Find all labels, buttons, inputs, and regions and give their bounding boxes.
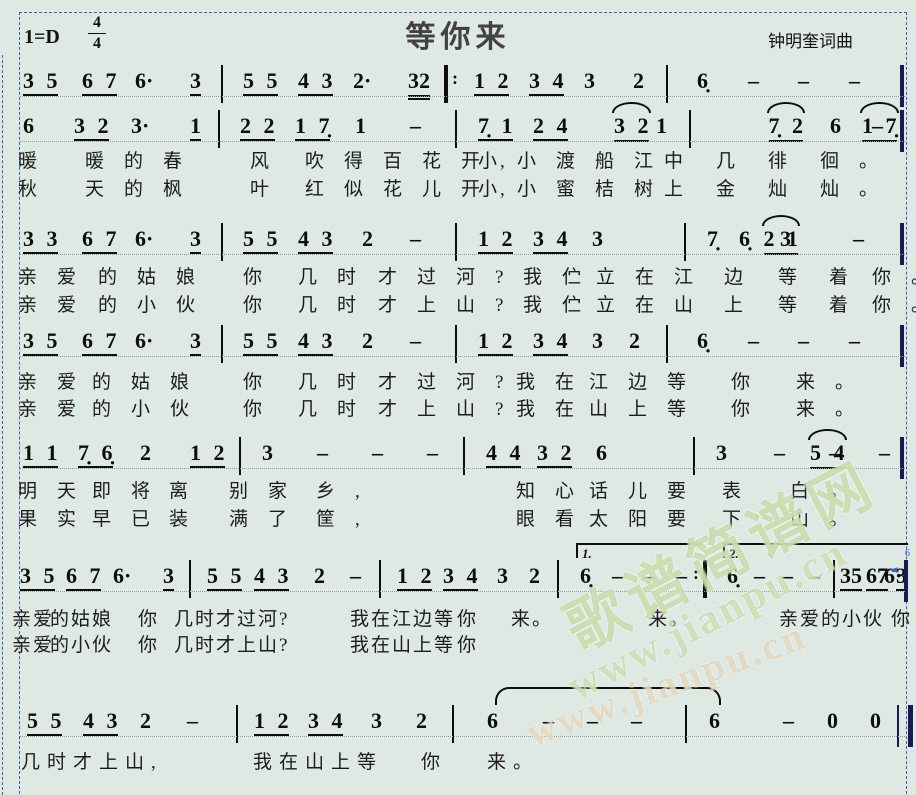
lyric-chunk: 上: [724, 296, 763, 315]
volta-bracket: 2.: [723, 543, 908, 558]
note-token: 6̣: [697, 330, 708, 352]
lyric-chunk: 江边等: [589, 373, 706, 392]
note-token: 1: [355, 115, 366, 137]
note-token: 1 2: [254, 710, 289, 736]
lyric-chunk: 你: [243, 296, 282, 315]
lyric-chunk: 表: [722, 482, 761, 501]
note-token: 6: [23, 115, 34, 137]
lyric-chunk: 你: [243, 373, 282, 392]
cursor-arrow-icon: ◄: [889, 563, 897, 576]
note-token: –: [587, 710, 598, 732]
note-token: 0: [870, 710, 881, 732]
note-token: 1 2: [478, 330, 513, 356]
lyric-chunk: 几时: [298, 268, 376, 287]
lyric-chunk: 下: [722, 510, 761, 529]
note-token: 7̣ 2: [769, 113, 804, 142]
lyric-chunk: 我在山上等: [253, 753, 383, 772]
lyric-chunk: 叶: [250, 180, 289, 199]
note-token: 3: [780, 228, 791, 250]
note-token: 4 3: [298, 330, 333, 356]
note-token: 2: [314, 565, 325, 587]
note-token: –: [427, 442, 438, 464]
note-token: –: [187, 710, 198, 732]
note-token: 6 7: [66, 565, 101, 591]
note-token: 7̣ 1: [478, 115, 513, 141]
lyric-chunk: 小小蜜桔树: [478, 180, 673, 199]
lyric-chunk: 灿: [768, 180, 807, 199]
note-token: –: [410, 115, 421, 137]
note-token: 2: [140, 442, 151, 464]
lyric-chunk: 等: [778, 268, 817, 287]
note-token: 3 2: [74, 115, 109, 141]
tie-arc: [495, 687, 721, 705]
note-token: 3 2: [614, 113, 649, 142]
note-token: 1: [190, 115, 201, 141]
note-token: –: [748, 70, 759, 92]
note-token: 3: [584, 70, 595, 92]
barline: [693, 437, 695, 475]
lyric-chunk: 秋: [18, 180, 57, 199]
note-token: 6 7: [82, 330, 117, 356]
note-token: 5 5: [243, 330, 278, 356]
note-token: 1: [656, 115, 667, 137]
lyric-chunk: 才过河?: [378, 268, 523, 287]
barline: [239, 437, 241, 475]
note-token: 32: [408, 68, 430, 97]
lyric-chunk: 山。: [790, 510, 868, 529]
note-token: 3·: [131, 115, 149, 137]
note-token: –: [754, 565, 765, 587]
barline: [666, 325, 668, 363]
note-token: –: [644, 565, 655, 587]
baseline-guide: [20, 468, 905, 469]
lyric-chunk: 我在: [516, 373, 594, 392]
lyric-chunk: 你: [138, 610, 159, 629]
lyric-chunk: 几时才过河?: [174, 610, 289, 629]
note-token: 3: [262, 442, 273, 464]
note-token: 1 2: [190, 442, 225, 468]
note-token: –: [631, 710, 642, 732]
note-token: –: [829, 442, 840, 464]
barline: [897, 705, 913, 747]
lyric-chunk: 你: [457, 636, 478, 655]
note-token: 4 3: [254, 565, 289, 591]
lyric-chunk: 你: [138, 636, 159, 655]
barline: [900, 110, 904, 152]
lyric-chunk: 来。: [648, 610, 690, 629]
note-token: 1 2: [397, 565, 432, 591]
lyric-chunk: 你: [243, 400, 282, 419]
lyric-chunk: 边: [724, 268, 763, 287]
lyric-chunk: 来。: [796, 400, 874, 419]
note-token: 3: [190, 330, 201, 356]
note-token: 3 4: [443, 565, 478, 591]
lyric-chunk: 来。: [511, 610, 553, 629]
lyric-chunk: 等: [778, 296, 817, 315]
lyric-chunk: 来。: [487, 753, 539, 772]
lyric-chunk: 的小伙: [50, 636, 113, 655]
lyric-chunk: 立在山: [596, 296, 713, 315]
baseline-guide: [20, 141, 905, 142]
lyric-chunk: 你: [421, 753, 447, 772]
note-token: 1 1: [23, 442, 58, 468]
volta-label: 1.: [582, 546, 592, 561]
barline: [900, 437, 904, 479]
lyric-chunk: 知心: [516, 482, 594, 501]
lyric-chunk: 的姑娘: [92, 373, 209, 392]
lyric-chunk: 太阳要: [589, 510, 706, 529]
note-token: –: [782, 565, 793, 587]
lyric-chunk: 你: [731, 373, 770, 392]
note-token: 3: [592, 228, 603, 250]
lyric-chunk: 才上山?: [378, 400, 523, 419]
note-token: –: [798, 330, 809, 352]
barline: [218, 110, 220, 148]
lyric-chunk: 中: [664, 152, 703, 171]
note-token: 2 4: [533, 115, 568, 141]
lyric-chunk: 你。: [872, 268, 916, 287]
note-token: 6̣: [727, 565, 738, 587]
barline: [833, 560, 835, 598]
lyric-chunk: 我在山上等: [350, 636, 455, 655]
composer-credit: 钟明奎词曲: [768, 27, 853, 52]
lyric-chunk: 果实: [18, 510, 96, 529]
lyric-chunk: 满了: [229, 510, 307, 529]
lyric-chunk: 几: [716, 152, 755, 171]
watermark-url-tan: www.jianpu.cn: [520, 611, 813, 756]
note-token: 3: [371, 710, 382, 732]
note-token: 6·: [113, 565, 131, 587]
barline: [379, 560, 381, 598]
note-token: 35: [840, 565, 862, 591]
note-token: –: [798, 70, 809, 92]
barline: [904, 560, 908, 602]
note-token: –: [872, 115, 883, 137]
lyric-chunk: 的姑娘: [50, 610, 113, 629]
lyric-chunk: 才过河?: [378, 373, 523, 392]
barline: [900, 223, 904, 265]
lyric-chunk: 风: [250, 152, 289, 171]
note-token: 3 4: [529, 70, 564, 96]
note-token: –: [372, 442, 383, 464]
barline: [666, 65, 668, 103]
note-token: 3 3: [23, 228, 58, 254]
note-token: 6·: [135, 70, 153, 92]
lyric-chunk: 我在江边等: [350, 610, 455, 629]
lyric-chunk: 灿。: [820, 180, 898, 199]
note-token: –: [317, 442, 328, 464]
note-token: 1 2: [478, 228, 513, 254]
lyric-chunk: 装: [169, 510, 208, 529]
lyric-chunk: 乡,: [316, 482, 380, 501]
note-token: 2: [362, 228, 373, 250]
note-token: 6·: [135, 330, 153, 352]
barline: [221, 325, 223, 363]
note-token: 3 2: [537, 442, 572, 468]
barline: [685, 705, 687, 743]
lyric-chunk: 着: [829, 268, 868, 287]
note-token: –: [774, 442, 785, 464]
note-token: –: [853, 228, 864, 250]
note-token: 6 7: [82, 70, 117, 96]
lyric-chunk: 暖的春: [85, 152, 202, 171]
note-token: 0: [827, 710, 838, 732]
note-token: 6: [487, 710, 498, 732]
lyric-chunk: 几时: [298, 296, 376, 315]
note-token: 1 2: [474, 70, 509, 96]
barline: [452, 705, 454, 743]
lyric-chunk: 的小伙: [98, 296, 215, 315]
note-token: 2: [633, 70, 644, 92]
lyric-chunk: 话儿要: [589, 482, 706, 501]
note-token: –: [410, 330, 421, 352]
lyric-chunk: 上: [664, 180, 703, 199]
note-token: 2 2: [240, 115, 275, 141]
lyric-chunk: 即将: [92, 482, 170, 501]
lyric-chunk: 的姑娘: [98, 268, 215, 287]
barline: [236, 705, 238, 743]
lyric-chunk: 来。: [796, 373, 874, 392]
lyric-chunk: 金: [716, 180, 755, 199]
note-token: 6̣: [739, 228, 750, 250]
lyric-chunk: 明天: [18, 482, 96, 501]
note-token: 3: [190, 228, 201, 254]
note-token: 2: [140, 710, 151, 732]
note-token: 4 3: [83, 710, 118, 736]
note-token: 6: [596, 442, 607, 464]
lyric-chunk: 亲爱: [18, 400, 96, 419]
lyric-chunk: 你: [891, 610, 912, 629]
note-token: 7̣ 6̣: [78, 442, 113, 468]
note-token: 4 3: [298, 70, 333, 96]
note-token: –: [849, 70, 860, 92]
volta-label: 2.: [729, 546, 739, 561]
note-token: 6 7: [82, 228, 117, 254]
barline: [455, 110, 457, 148]
barline: [684, 223, 686, 261]
lyric-chunk: 山上等: [589, 400, 706, 419]
barline: [689, 110, 691, 148]
note-token: 3: [190, 70, 201, 96]
barline: [444, 65, 448, 103]
note-token: 6̣: [697, 70, 708, 92]
lyric-chunk: 你。: [872, 296, 916, 315]
page-edge-guide: [2, 55, 3, 795]
barline: [455, 223, 457, 261]
lyric-chunk: 着: [829, 296, 868, 315]
lyric-chunk: 你: [243, 268, 282, 287]
note-token: 3: [497, 565, 508, 587]
note-token: 6: [709, 710, 720, 732]
lyric-chunk: 亲爱: [18, 373, 96, 392]
lyric-chunk: 几时: [298, 400, 376, 419]
note-token: 4 3: [298, 228, 333, 254]
note-token: 3: [163, 565, 174, 591]
note-token: 2: [362, 330, 373, 352]
lyric-chunk: 白。: [790, 482, 868, 501]
note-token: 2: [416, 710, 427, 732]
note-token: 5 5: [243, 228, 278, 254]
lyric-chunk: 亲爱: [18, 268, 96, 287]
barline: [557, 560, 559, 598]
note-token: 6: [830, 115, 841, 137]
lyric-chunk: 别家: [229, 482, 307, 501]
lyric-chunk: 亲爱: [12, 610, 54, 629]
note-token: 1 7̣: [295, 115, 330, 141]
lyric-chunk: 亲爱: [18, 296, 96, 315]
note-token: 5 5: [243, 70, 278, 96]
note-token: 3 4: [308, 710, 343, 736]
lyric-chunk: 几时: [298, 373, 376, 392]
lyric-chunk: 立在江: [596, 268, 713, 287]
note-token: 6̣: [580, 565, 591, 587]
lyric-chunk: 徊。: [820, 152, 898, 171]
lyric-chunk: 我伫: [523, 296, 601, 315]
baseline-guide: [20, 591, 905, 592]
note-token: 2·: [353, 70, 371, 92]
note-token: 2: [529, 565, 540, 587]
lyric-chunk: 亲爱的小伙: [779, 610, 884, 629]
baseline-guide: [20, 356, 905, 357]
note-token: –: [410, 228, 421, 250]
lyric-chunk: 几时才上山,: [21, 753, 163, 772]
note-token: 3 4: [533, 228, 568, 254]
lyric-chunk: 眼看: [516, 510, 594, 529]
note-token: –: [783, 710, 794, 732]
baseline-guide: [20, 96, 905, 97]
baseline-guide: [20, 736, 905, 737]
note-token: –: [543, 710, 554, 732]
note-token: 4 4: [486, 442, 521, 468]
lyric-chunk: 我在: [516, 400, 594, 419]
note-token: –: [676, 565, 687, 587]
note-token: 6·: [135, 228, 153, 250]
volta-bracket: 1.: [576, 543, 702, 558]
note-token: 3 5: [23, 330, 58, 356]
note-token: –: [748, 330, 759, 352]
barline: [900, 325, 904, 367]
note-token: –: [350, 565, 361, 587]
note-token: 3: [716, 442, 727, 464]
lyric-chunk: 离: [169, 482, 208, 501]
note-token: 5 5: [27, 710, 62, 736]
lyric-chunk: 你: [457, 610, 478, 629]
lyric-chunk: 徘: [768, 152, 807, 171]
lyric-chunk: 早已: [92, 510, 170, 529]
lyric-chunk: 我伫: [523, 268, 601, 287]
barline: [221, 223, 223, 261]
barline: [703, 560, 707, 598]
lyric-chunk: 天的枫: [85, 180, 202, 199]
barline: [189, 560, 191, 598]
cursor-label: 6: [905, 548, 910, 559]
note-token: 3 4: [533, 330, 568, 356]
note-token: 7̣: [707, 228, 718, 250]
barline: [463, 437, 465, 475]
lyric-chunk: 才上山?: [378, 296, 523, 315]
baseline-guide: [20, 254, 905, 255]
note-token: 5 5: [207, 565, 242, 591]
lyric-chunk: 小小渡船江: [478, 152, 673, 171]
note-token: –: [809, 565, 820, 587]
lyric-chunk: 暖: [18, 152, 57, 171]
barline: [221, 65, 223, 103]
lyric-chunk: 几时才上山?: [174, 636, 289, 655]
lyric-chunk: 筐,: [316, 510, 380, 529]
sheet-music-page: 1=D 4 4 等你来 钟明奎词曲 3 56 76·35 54 32·321 2…: [0, 0, 916, 795]
lyric-chunk: 的小伙: [92, 400, 209, 419]
note-token: –: [612, 565, 623, 587]
note-token: 3: [592, 330, 603, 352]
note-token: –: [849, 330, 860, 352]
lyric-chunk: 亲爱: [12, 636, 54, 655]
note-token: 3 5: [23, 70, 58, 96]
note-token: 3 5: [20, 565, 55, 591]
note-token: 2: [629, 330, 640, 352]
lyric-chunk: 你: [731, 400, 770, 419]
barline: [900, 65, 904, 107]
note-token: –: [879, 442, 890, 464]
barline: [455, 325, 457, 363]
